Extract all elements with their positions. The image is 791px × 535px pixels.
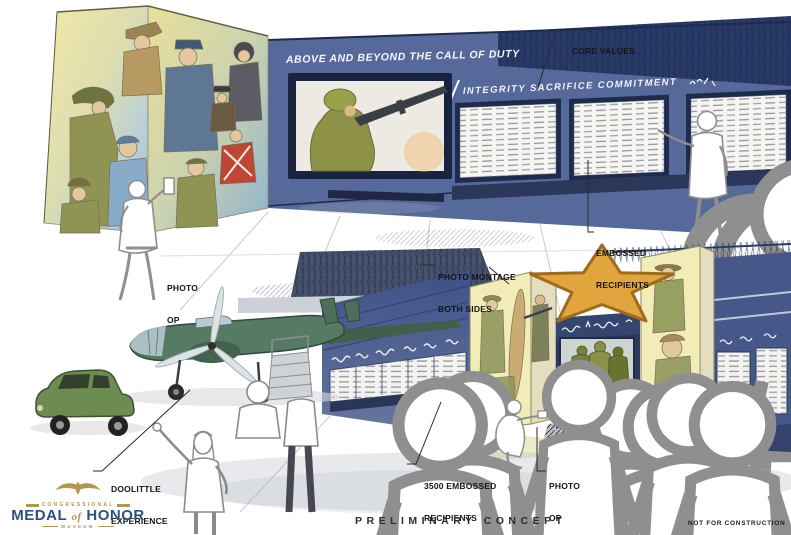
callout-embossed-line1: EMBOSSED [596,248,649,259]
callout-photo-montage-line1: PHOTO MONTAGE [438,272,516,283]
logo-medal-of-honor: MEDAL of HONOR [8,508,148,524]
vintage-car [30,370,146,436]
footer-disclaimer: NOT FOR CONSTRUCTION [688,520,785,527]
callout-photo-op-upper-line2: OP [167,315,198,326]
screen-soldier-face [345,106,356,117]
callout-photo-op-upper-line1: PHOTO [167,283,198,294]
footer-title: PRELIMINARY CONCEPT [355,515,567,527]
eagle-icon [52,477,104,497]
logo-line-right [98,526,114,527]
medal-of-honor-museum-logo: CONGRESSIONAL MEDAL of HONOR MUSEUM [8,477,148,529]
logo-honor-text: HONOR [86,507,144,524]
mural-wall [44,6,268,233]
logo-museum-row: MUSEUM [8,524,148,529]
callout-photo-montage: PHOTO MONTAGE BOTH SIDES [438,251,516,325]
callout-embossed-recipients: EMBOSSED RECIPIENTS [596,227,649,301]
callout-embossed-line2: RECIPIENTS [596,280,649,291]
callout-photo-op-upper: PHOTO OP [167,262,198,336]
logo-line-left [42,526,58,527]
callout-photo-op-lower-line1: PHOTO [549,481,580,492]
concept-rendering: ABOVE AND BEYOND THE CALL OF DUTY INTEGR… [0,0,791,535]
floor-shadow-scribble [375,229,535,247]
screen-glow [404,132,444,172]
callout-core-values-text: CORE VALUES [572,46,635,57]
illustration: ABOVE AND BEYOND THE CALL OF DUTY INTEGR… [0,0,791,535]
logo-museum-text: MUSEUM [61,524,94,529]
logo-of-text: of [72,511,82,523]
callout-photo-montage-line2: BOTH SIDES [438,304,516,315]
logo-medal-text: MEDAL [11,507,67,524]
callout-core-values: CORE VALUES [572,25,635,68]
callout-3500-line1: 3500 EMBOSSED [424,481,497,492]
